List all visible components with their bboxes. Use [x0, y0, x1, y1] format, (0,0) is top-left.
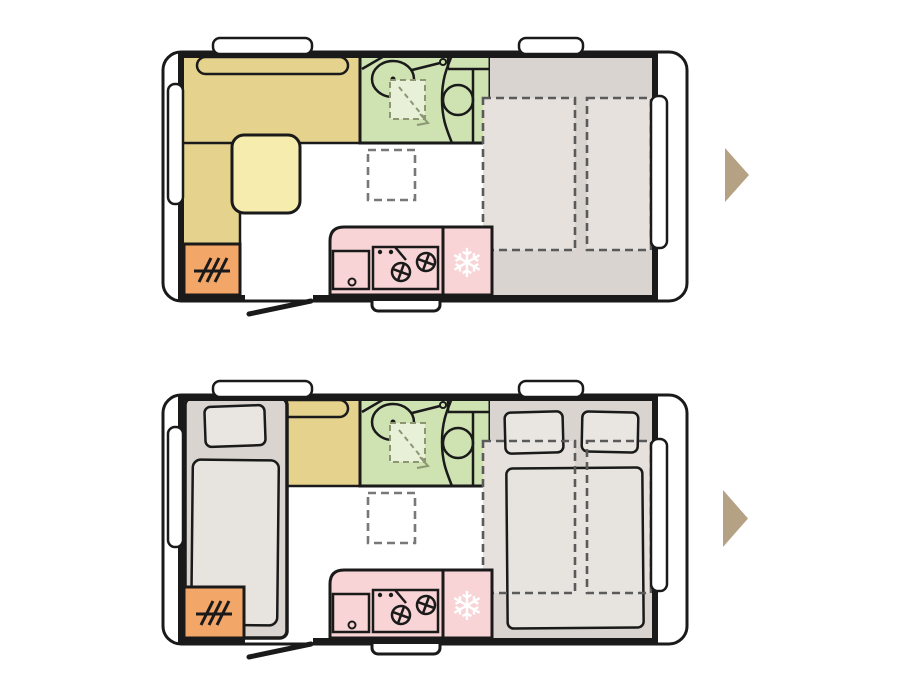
kitchen: ❄	[330, 570, 492, 638]
heater	[184, 587, 244, 638]
window-right-side	[651, 439, 667, 591]
floorplan-night-drawing: ❄	[140, 371, 720, 663]
window-front-right	[519, 381, 583, 397]
shower-tray	[390, 80, 425, 119]
bench-headrest	[197, 57, 348, 74]
bathroom	[360, 398, 490, 486]
window-right-side	[651, 96, 667, 248]
tap	[440, 59, 446, 65]
dinette-table	[232, 135, 300, 213]
floorplan-night: ❄	[140, 371, 720, 663]
next-arrow-icon	[723, 490, 748, 547]
window-left-side	[168, 427, 183, 547]
snowflake-icon: ❄	[450, 241, 484, 287]
heater	[184, 244, 240, 295]
window-front-left	[213, 381, 312, 397]
snowflake-icon: ❄	[450, 584, 484, 630]
single-bed-pillow	[204, 405, 265, 447]
tap	[440, 402, 446, 408]
next-arrow-bottom[interactable]	[723, 490, 748, 547]
window-front-left	[213, 38, 312, 54]
entry-door	[249, 301, 311, 314]
shower-tray	[390, 423, 425, 462]
next-arrow-top[interactable]	[725, 148, 750, 205]
drop-table-outline	[368, 150, 415, 200]
floorplan-day-drawing: ❄	[140, 28, 720, 320]
kitchen: ❄	[330, 227, 492, 295]
double-bed-pillow-right	[582, 411, 639, 452]
floorplan-canvas: ❄	[0, 0, 906, 680]
floorplan-day: ❄	[140, 28, 720, 320]
entry-door	[249, 644, 311, 657]
fixed-bed-area	[483, 56, 653, 296]
next-arrow-icon	[725, 148, 750, 205]
double-bed-pillow-left	[504, 411, 563, 454]
window-front-right	[519, 38, 583, 54]
drop-table-outline	[368, 493, 415, 543]
window-left-side	[168, 84, 183, 204]
bathroom	[360, 55, 490, 143]
fixed-bed-area	[483, 399, 653, 639]
